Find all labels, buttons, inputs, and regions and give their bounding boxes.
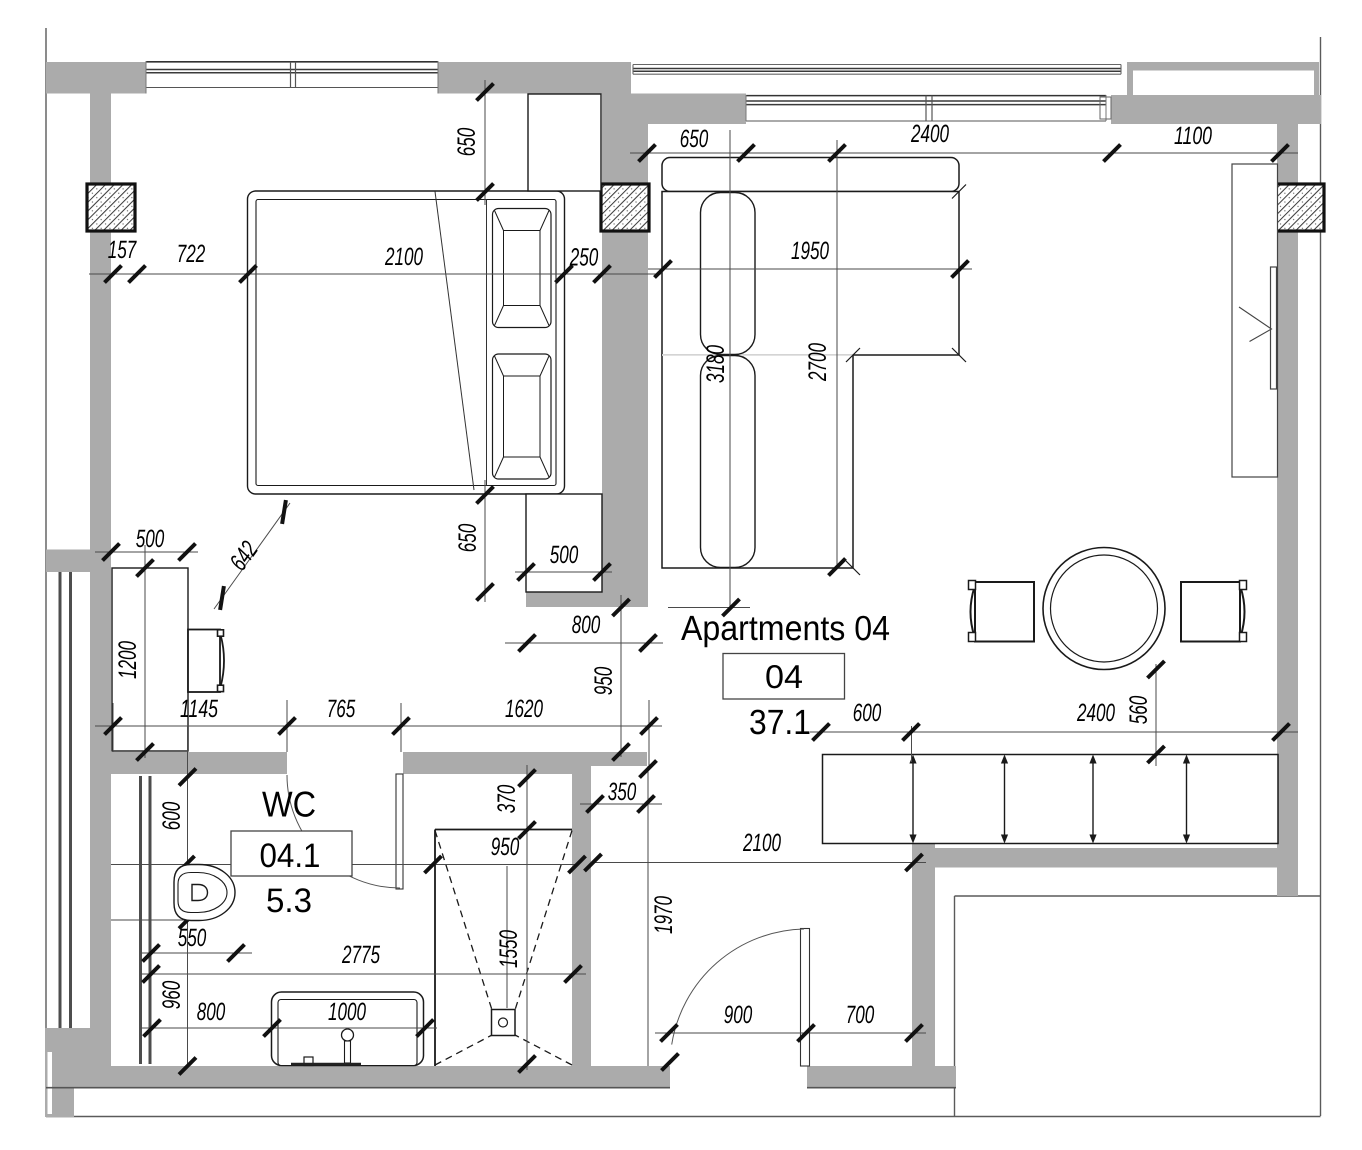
svg-text:500: 500 xyxy=(136,525,165,553)
svg-text:650: 650 xyxy=(453,128,481,157)
svg-text:560: 560 xyxy=(1125,696,1153,725)
svg-text:350: 350 xyxy=(608,778,637,806)
svg-text:2100: 2100 xyxy=(384,243,423,271)
svg-text:370: 370 xyxy=(493,785,521,814)
svg-text:950: 950 xyxy=(491,833,520,861)
svg-text:Apartments 04: Apartments 04 xyxy=(681,609,890,648)
svg-text:WC: WC xyxy=(262,784,316,825)
svg-text:765: 765 xyxy=(327,695,356,723)
svg-text:600: 600 xyxy=(853,699,882,727)
svg-text:04.1: 04.1 xyxy=(259,837,320,875)
svg-text:04: 04 xyxy=(765,658,803,695)
svg-text:650: 650 xyxy=(680,125,709,153)
svg-text:950: 950 xyxy=(590,667,618,696)
svg-text:900: 900 xyxy=(724,1001,753,1029)
svg-text:722: 722 xyxy=(177,240,206,268)
svg-text:1100: 1100 xyxy=(1174,122,1212,150)
svg-text:1550: 1550 xyxy=(495,930,523,968)
svg-text:2100: 2100 xyxy=(742,829,781,857)
svg-text:700: 700 xyxy=(846,1001,875,1029)
svg-text:2400: 2400 xyxy=(910,120,949,148)
svg-text:550: 550 xyxy=(178,924,207,952)
svg-text:1145: 1145 xyxy=(180,695,218,723)
svg-text:2775: 2775 xyxy=(341,941,380,969)
svg-text:157: 157 xyxy=(108,236,137,264)
svg-text:3180: 3180 xyxy=(702,345,730,383)
svg-text:1950: 1950 xyxy=(791,237,829,265)
svg-text:1200: 1200 xyxy=(114,641,142,679)
svg-text:2400: 2400 xyxy=(1076,699,1115,727)
svg-text:650: 650 xyxy=(454,524,482,553)
svg-text:960: 960 xyxy=(158,981,186,1010)
svg-text:600: 600 xyxy=(158,802,186,831)
svg-text:37.1: 37.1 xyxy=(749,703,811,742)
svg-text:2700: 2700 xyxy=(804,343,832,382)
svg-text:5.3: 5.3 xyxy=(266,882,312,920)
svg-text:1620: 1620 xyxy=(505,695,543,723)
svg-text:800: 800 xyxy=(197,998,226,1026)
svg-text:250: 250 xyxy=(569,243,598,271)
svg-text:1000: 1000 xyxy=(328,998,366,1026)
svg-text:1970: 1970 xyxy=(650,896,678,934)
svg-text:500: 500 xyxy=(550,541,579,569)
svg-text:800: 800 xyxy=(572,611,601,639)
